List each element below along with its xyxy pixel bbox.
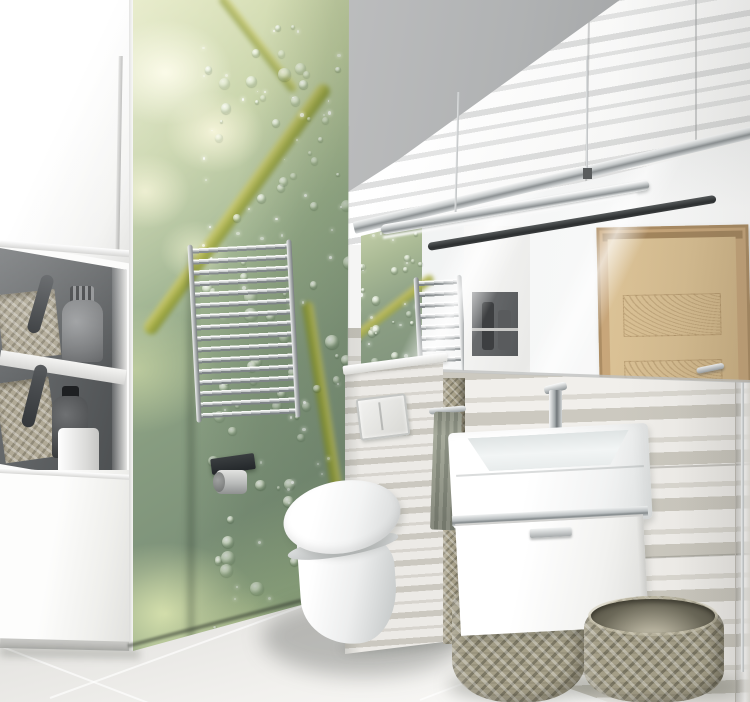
sparkle-highlight [355,307,358,310]
storage-upper-door [0,0,133,270]
toilet-paper-roll [216,470,247,494]
storage-lower-front [0,470,131,652]
cabinet-door-seam [695,0,697,148]
water-droplet [358,323,361,326]
corner-chrome-trim [741,372,744,672]
water-droplet [354,287,361,294]
vanity-handle [530,527,572,538]
storage-side-edge [129,0,133,658]
grey-bottle [62,300,103,362]
light-rod-mount [583,168,592,179]
wicker-basket-right [584,596,724,702]
light-suspension-rod [586,56,588,178]
toilet-paper-roll-side [213,472,225,492]
open-shelf-niche [0,246,127,488]
storage-unit [0,0,133,662]
bathroom-render [0,0,750,702]
flush-plate [356,393,411,441]
towel-radiator [187,239,300,422]
flush-plate-divider [378,402,383,430]
radiator-rungs [191,244,298,419]
basket-opening [591,599,715,633]
